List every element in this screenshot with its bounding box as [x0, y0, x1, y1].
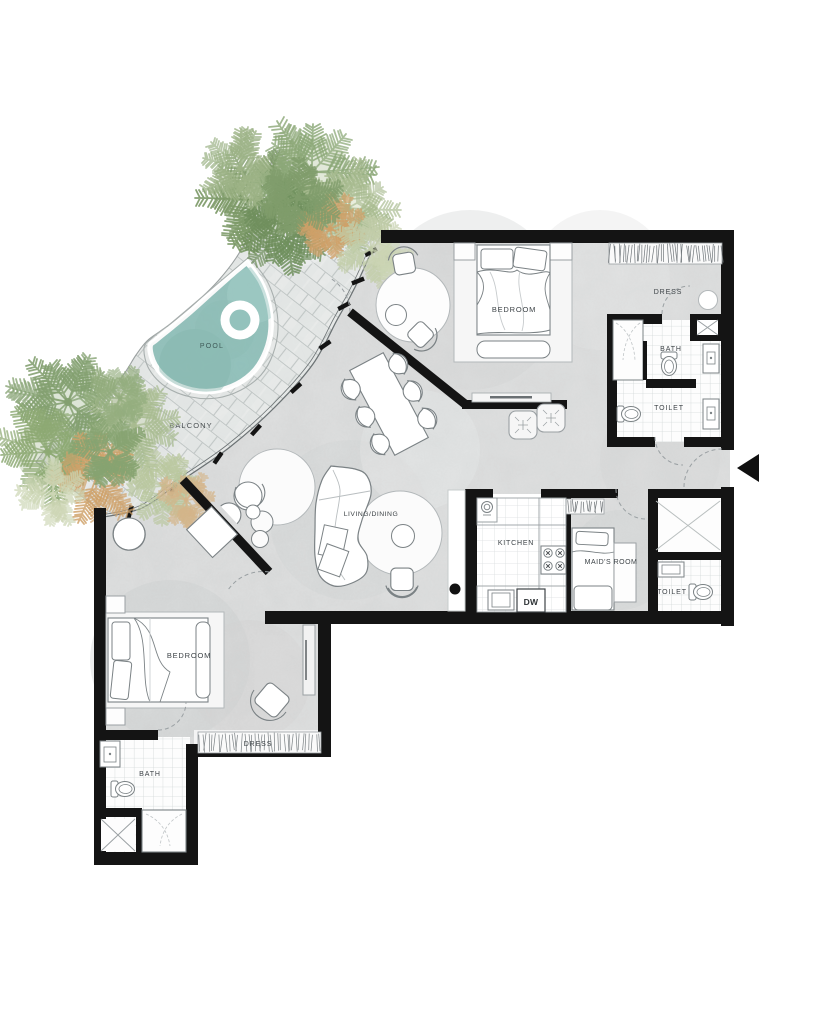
- svg-text:TOILET: TOILET: [657, 589, 687, 596]
- svg-text:LIVING/DINING: LIVING/DINING: [344, 511, 398, 518]
- svg-text:TOILET: TOILET: [654, 405, 684, 412]
- svg-text:KITCHEN: KITCHEN: [498, 540, 534, 547]
- svg-text:BATH: BATH: [660, 346, 682, 353]
- svg-text:BEDROOM: BEDROOM: [167, 651, 211, 660]
- svg-text:BATH: BATH: [139, 771, 161, 778]
- svg-text:DRESS: DRESS: [654, 289, 683, 296]
- svg-text:DRESS: DRESS: [244, 741, 273, 748]
- svg-text:MAID'S ROOM: MAID'S ROOM: [585, 559, 638, 566]
- svg-text:DW: DW: [524, 597, 539, 607]
- svg-text:BEDROOM: BEDROOM: [492, 305, 536, 314]
- svg-text:POOL: POOL: [200, 343, 224, 350]
